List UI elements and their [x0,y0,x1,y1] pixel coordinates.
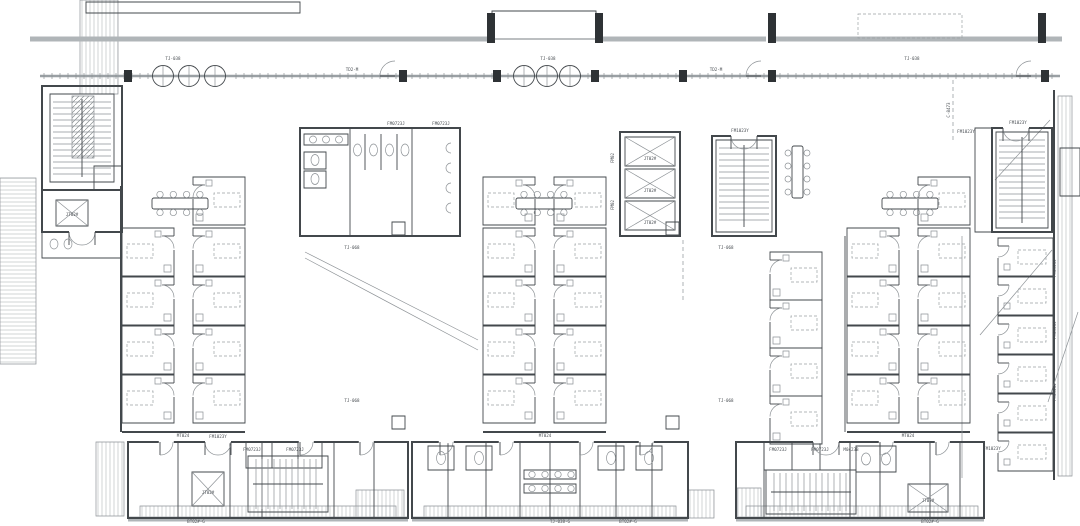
sink [529,471,535,477]
wc-pod [598,446,624,470]
entrance-vestibule [492,11,596,39]
chair [183,191,189,197]
column [666,416,679,429]
patient-room [769,300,822,348]
chair [547,191,553,197]
chair [170,191,176,197]
sink [555,471,561,477]
plan-label: C-8473 [946,102,951,118]
plan-label: TD2-M [346,67,359,72]
walls [121,90,1078,519]
toilet-fixture [311,155,319,166]
sink [529,485,535,491]
entry-ramp-hatch [80,0,118,94]
double-door-swing [205,442,218,455]
plan-label: FM1023Y [209,434,227,439]
plan-label: FM0923J [1052,383,1057,401]
small-rooms [246,442,322,468]
plan-label: FM0723J [243,447,261,452]
plan-label: TJ-038 [165,56,181,61]
double-door-swing [1003,128,1016,141]
table-with-chairs [516,198,572,209]
patient-room-wings [122,177,1053,471]
plan-label: JT02# [644,156,657,161]
curtain-wall-post [124,70,132,82]
plan-label: FM02 [610,199,615,210]
plan-label: BT02#-G [187,519,205,524]
column [392,222,405,235]
east-room [997,433,1053,471]
chair [804,176,810,182]
patient-room [122,375,175,423]
door-swing [380,61,395,76]
patient-room [122,277,175,325]
facade-post [768,13,776,43]
toilet-fixture [354,144,362,156]
chair [183,209,189,215]
double-door-swing [1016,128,1029,141]
east-room [997,316,1053,354]
chair [561,191,567,197]
sink [542,471,548,477]
door-swing [440,442,453,455]
chair [157,191,163,197]
plan-label: FM0923J [1052,321,1057,339]
chair [913,209,919,215]
chair [170,209,176,215]
curtain-wall-post [1041,70,1049,82]
plan-label: MT024 [177,433,190,438]
urinal-fixture [446,203,451,213]
stair-hatch [72,96,94,158]
chair [197,191,203,197]
chair [785,176,791,182]
patient-room [769,396,822,444]
patient-room [769,348,822,396]
patient-room [917,177,970,225]
facade-post [487,13,495,43]
curtain-wall-post [493,70,501,82]
canopy-dashed-outline [858,14,962,38]
plan-label: FM0923J [1052,259,1057,277]
exterior-hatch-areas [0,0,1072,518]
plan-label: MT024 [902,433,915,438]
door-swing [936,442,949,455]
patient-room [483,277,536,325]
patient-room [483,228,536,276]
toilet-fixture [401,144,409,156]
toilet-fixture [64,239,72,249]
patient-room [483,177,536,225]
plan-label: TJ-068 [718,398,734,403]
patient-room [483,375,536,423]
double-door-swing [731,136,744,149]
north-facade [30,2,1062,140]
toilet-fixture [475,452,484,465]
plan-label: TJ-038 [904,56,920,61]
patient-room [192,375,245,423]
curtain-wall-post [591,70,599,82]
chair [804,163,810,169]
sink [336,136,343,143]
plan-label: BT02#-G [921,519,939,524]
door-swing [360,442,373,455]
east-room [997,355,1053,393]
patient-room [847,326,900,374]
door-swing [1016,61,1031,76]
plan-label: FM1023Y [731,128,749,133]
facade-post [1038,13,1046,43]
plan-label: TJ-068 [344,245,360,250]
patient-room [192,277,245,325]
sink [542,485,548,491]
urinal-fixture [446,143,451,153]
chair [521,191,527,197]
sink [323,136,330,143]
toilet-fixture [607,452,616,465]
plan-label: TD2-M [710,67,723,72]
patient-room [847,228,900,276]
plan-label: TJ-068 [718,245,734,250]
plan-label: FM0723J [387,121,405,126]
sink [568,485,574,491]
east-room [997,277,1053,315]
door-swing [500,442,513,455]
patient-room [553,228,606,276]
east-room [997,238,1053,276]
fixtures-furniture [50,134,938,493]
plan-label: BT02#-G [619,519,637,524]
balcony-hatch [96,442,124,516]
leader-line [980,250,1052,335]
shaft [975,128,992,232]
west-terrace-hatch [0,178,36,364]
sink [310,136,317,143]
plan-label: FM02 [610,152,615,163]
plan-label: FM1023Y [1009,120,1027,125]
chair [887,209,893,215]
toilet-core [300,128,460,236]
leader-line [305,252,478,340]
table-with-chairs [792,146,803,198]
patient-room [769,252,822,300]
plan-label: TJ-068 [344,398,360,403]
stair-elevator-cores [42,86,1080,518]
chair [197,209,203,215]
toilet-fixture [370,144,378,156]
plan-label: JT02# [644,188,657,193]
floor-plan-sheet: TJ-038TJ-038TJ-038TD2-MTD2-MFM0723JFM072… [0,0,1080,526]
plan-label: M0423B [843,447,859,452]
double-door-swing [69,232,82,245]
plan-label: FM0723J [286,447,304,452]
plan-label: MT024 [539,433,552,438]
plan-label: FM1023Y [957,129,975,134]
curtain-wall-post [399,70,407,82]
plan-label: JT02# [922,498,935,503]
patient-room [192,177,245,225]
toilet-fixture [862,453,871,465]
toilet-fixture [386,144,394,156]
plan-label: JT02# [644,220,657,225]
chair [157,209,163,215]
plan-label: JT02# [66,212,79,217]
chair [887,191,893,197]
patient-room [483,326,536,374]
plan-label: FM0723J [769,447,787,452]
plan-label: JT02# [202,490,215,495]
service-room [94,166,122,190]
curtain-wall-post [768,70,776,82]
double-door-swing [82,232,95,245]
chair [927,209,933,215]
plan-label: FM0723J [432,121,450,126]
patient-room [553,326,606,374]
plan-label: FM1023Y [983,446,1001,451]
chair [785,163,791,169]
patient-room [122,326,175,374]
toilet-fixture [437,452,446,465]
chair [785,150,791,156]
patient-room [847,375,900,423]
plan-label: TJ-038 [540,56,556,61]
patient-room [192,326,245,374]
chair [785,189,791,195]
balcony-hatch [688,490,714,518]
patient-room [192,228,245,276]
column [392,416,405,429]
chair [804,150,810,156]
door-swing [160,442,173,455]
floor-plan-drawing: TJ-038TJ-038TJ-038TD2-MTD2-MFM0723JFM072… [0,0,1080,526]
toilet-fixture [882,453,891,465]
door-swing [580,442,593,455]
patient-room [553,277,606,325]
leader-line [305,258,478,350]
facade-post [595,13,603,43]
wc-pod [466,446,492,470]
chair [900,209,906,215]
plan-label: FM0723J [811,447,829,452]
sink [555,485,561,491]
patient-room [553,177,606,225]
patient-room [553,375,606,423]
sink [568,471,574,477]
curtain-wall-post [679,70,687,82]
chair [900,191,906,197]
urinal-fixture [446,163,451,173]
chair [804,189,810,195]
wc-pod [428,446,454,470]
toilet-fixture [50,239,58,249]
east-room [997,394,1053,432]
chair [927,191,933,197]
toilet-fixture [311,174,319,185]
chair [547,209,553,215]
chair [521,209,527,215]
double-door-swing [218,442,231,455]
patient-room [847,277,900,325]
patient-room [122,228,175,276]
table-with-chairs [882,198,938,209]
urinal-fixture [446,183,451,193]
table-with-chairs [152,198,208,209]
plan-labels: TJ-038TJ-038TJ-038TD2-MTD2-MFM0723JFM072… [66,56,1057,524]
double-door-swing [744,136,757,149]
plan-label: TJ-038-G [550,519,571,524]
